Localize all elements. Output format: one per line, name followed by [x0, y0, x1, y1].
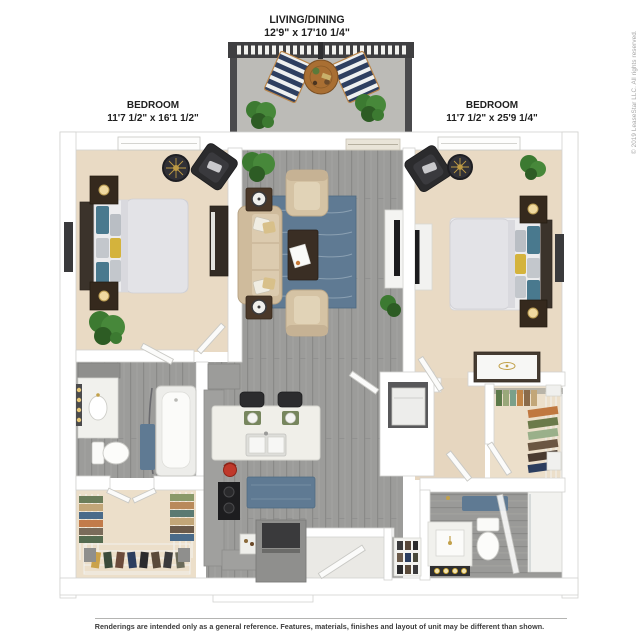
nightstand-bottom [520, 300, 547, 327]
red-kettle [224, 463, 237, 477]
bathtub [149, 386, 196, 476]
bedroom-right-label: BEDROOM 11'7 1/2" x 25'9 1/4" [446, 100, 538, 125]
fridge [208, 364, 240, 389]
tv-console [210, 206, 228, 276]
armchair-bottom [286, 290, 328, 336]
sofa [238, 206, 282, 304]
bedroom-left-label: BEDROOM 11'7 1/2" x 16'1 1/2" [107, 100, 199, 125]
wall-art [64, 222, 73, 272]
vanity [428, 522, 472, 576]
cooktop [218, 482, 240, 520]
bedroom-left-dimensions: 11'7 1/2" x 16'1 1/2" [107, 113, 199, 126]
floor-plan-image: LIVING/DINING 12'9" x 17'10 1/4" BEDROOM… [0, 0, 639, 639]
nightstand-top [520, 196, 547, 223]
bed [450, 218, 552, 310]
bath-mat [140, 424, 155, 470]
kitchen-cart [256, 520, 306, 582]
disclaimer-text: Renderings are intended only as a genera… [0, 622, 639, 631]
balcony-table [304, 60, 338, 94]
side-table-top [246, 188, 272, 211]
kitchen-island [212, 406, 320, 460]
bed [80, 199, 188, 293]
wall-art [555, 234, 564, 282]
armchair-top [286, 170, 328, 216]
entry [394, 538, 421, 576]
water-heater [392, 388, 425, 425]
toaster [240, 534, 258, 554]
round-mirror [163, 155, 189, 181]
storage-box [546, 385, 561, 396]
bedroom-right-name: BEDROOM [446, 100, 538, 113]
floor-plan-graphic [0, 0, 639, 639]
dresser [474, 352, 540, 382]
bar-stool [278, 392, 302, 407]
shower-floor [528, 492, 563, 572]
living-dining-label: LIVING/DINING 12'9" x 17'10 1/4" [264, 14, 350, 39]
living-dining-dimensions: 12'9" x 17'10 1/4" [264, 27, 350, 40]
balcony-rail-post [318, 42, 323, 59]
entry-shoe-rack [394, 538, 421, 576]
tv-console [415, 224, 432, 290]
toilet [477, 518, 499, 560]
utility-closet [380, 372, 434, 476]
bedroom-right-dimensions: 11'7 1/2" x 25'9 1/4" [446, 113, 538, 126]
round-mirror [448, 155, 472, 179]
coffee-table [288, 230, 318, 280]
kitchen-rug [247, 477, 315, 508]
bedroom-left-name: BEDROOM [107, 100, 199, 113]
nightstand-top [90, 176, 118, 204]
tv-console-living [385, 210, 403, 288]
footer-divider [95, 618, 567, 619]
living-dining-name: LIVING/DINING [264, 14, 350, 27]
storage-box [547, 452, 561, 470]
copyright-notice: © 2019 LeaseStar LLC. All rights reserve… [631, 30, 638, 154]
side-table-bottom [246, 296, 272, 319]
nightstand-bottom [90, 282, 118, 310]
toilet [92, 442, 129, 464]
upper-cabinet [78, 363, 120, 378]
bar-stool [240, 392, 264, 407]
vanity [76, 378, 118, 438]
